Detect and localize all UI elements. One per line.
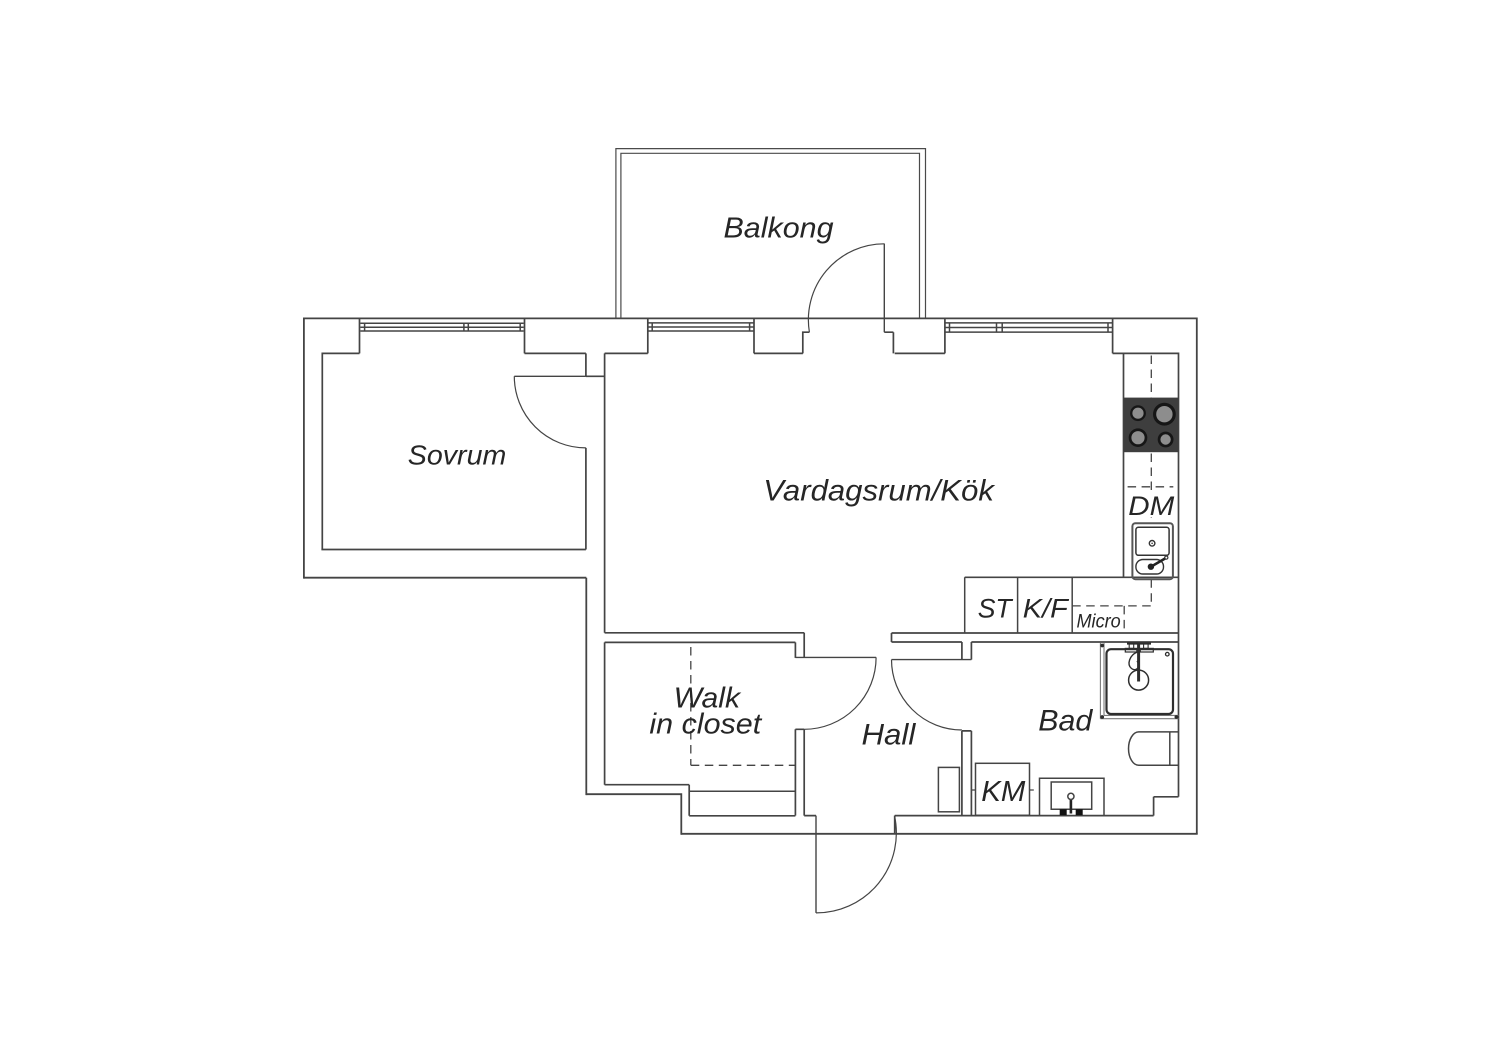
svg-text:K/F: K/F [1023, 594, 1070, 624]
svg-text:Hall: Hall [862, 719, 917, 752]
svg-text:DM: DM [1128, 491, 1175, 521]
svg-text:Vardagsrum/Kök: Vardagsrum/Kök [763, 474, 995, 507]
svg-text:Bad: Bad [1038, 704, 1094, 737]
svg-text:ST: ST [978, 594, 1014, 624]
svg-text:Sovrum: Sovrum [408, 440, 507, 471]
svg-text:Balkong: Balkong [724, 213, 834, 245]
svg-text:KM: KM [981, 776, 1025, 808]
svg-text:Micro: Micro [1077, 611, 1121, 633]
svg-text:in closet: in closet [649, 708, 762, 740]
